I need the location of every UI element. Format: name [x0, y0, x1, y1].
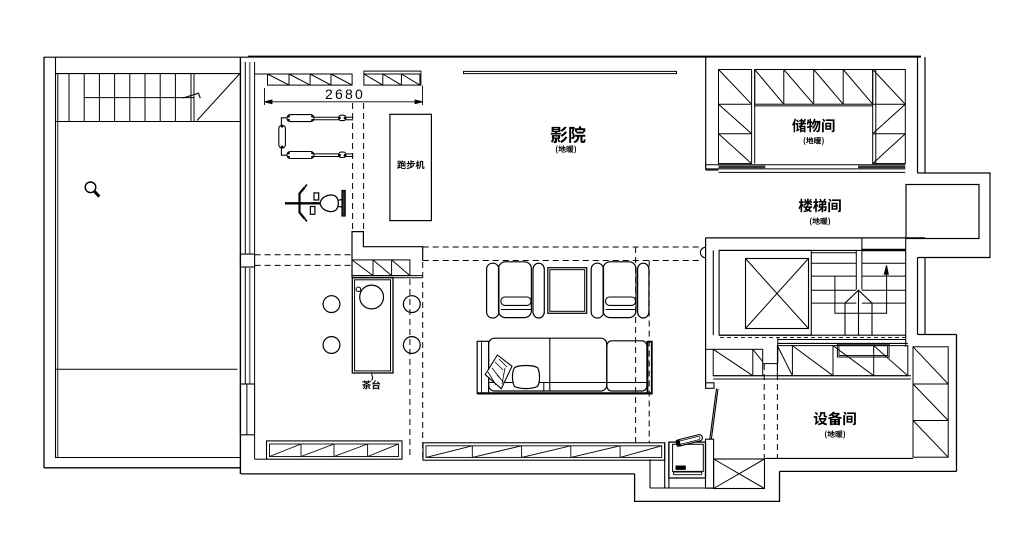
svg-text:2680: 2680	[325, 86, 365, 102]
